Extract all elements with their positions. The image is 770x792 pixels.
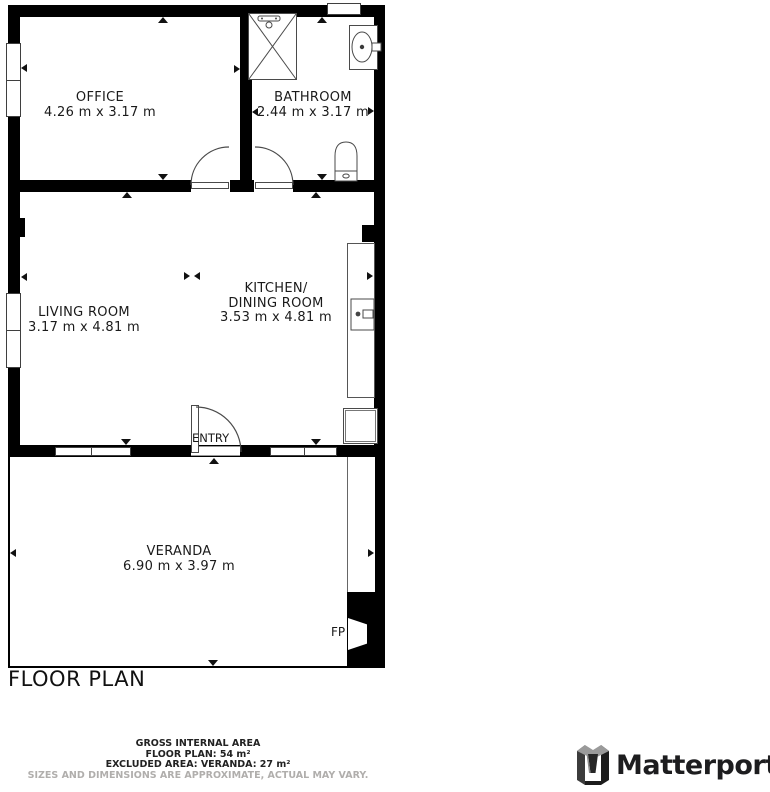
window-bottom-right-b [304,447,337,456]
living-name: LIVING ROOM [28,306,140,321]
room-label-kitchen: KITCHEN/ DINING ROOM 3.53 m x 4.81 m [220,282,332,326]
bathroom-door-leaf [255,182,293,189]
dimension-marker [121,439,131,445]
kitchen-appliance [343,408,378,444]
dimension-marker [21,64,27,72]
matterport-wordmark: Matterport [616,750,770,781]
footer-gross-internal-area: GROSS INTERNAL AREA [28,739,369,750]
wall-pier-right [362,225,385,242]
fireplace-opening [348,618,367,650]
dimension-marker [10,549,16,557]
fireplace [347,592,385,668]
veranda-dims: 6.90 m x 3.97 m [123,560,235,575]
room-label-bathroom: BATHROOM 2.44 m x 3.17 m [257,91,369,120]
dimension-marker [158,174,168,180]
dimension-marker [367,272,373,280]
dimension-marker [234,65,240,73]
window-bottom-left-b [91,447,131,456]
office-name: OFFICE [44,91,156,106]
dimension-marker [122,192,132,198]
bathroom-name: BATHROOM [257,91,369,106]
window-bottom-right-a [270,447,305,456]
dimension-marker [184,272,190,280]
wall-pier-left [8,218,25,237]
dimension-marker [21,273,27,281]
dimension-marker [311,439,321,445]
room-label-office: OFFICE 4.26 m x 3.17 m [44,91,156,120]
kitchen-name-line1: KITCHEN/ [220,282,332,297]
shower-fixture [248,13,297,80]
veranda-wall-left [8,457,10,668]
floor-plan-canvas: OFFICE 4.26 m x 3.17 m BATHROOM 2.44 m x… [0,0,770,792]
veranda-bench [347,457,375,595]
kitchen-dims: 3.53 m x 4.81 m [220,311,332,326]
entry-label: ENTRY [192,431,229,445]
office-door-leaf [191,182,229,189]
room-label-veranda: VERANDA 6.90 m x 3.97 m [123,545,235,574]
window-bottom-left-a [55,447,92,456]
toilet-icon [335,142,357,181]
footer-disclaimer: SIZES AND DIMENSIONS ARE APPROXIMATE, AC… [28,771,369,782]
bathroom-dims: 2.44 m x 3.17 m [257,106,369,121]
fireplace-label: FP [331,625,345,639]
dimension-marker [368,549,374,557]
kitchen-name-line2: DINING ROOM [220,297,332,312]
dimension-marker [194,272,200,280]
room-label-living: LIVING ROOM 3.17 m x 4.81 m [28,306,140,335]
window-office-left-upper [6,43,21,81]
dimension-marker [311,192,321,198]
office-dims: 4.26 m x 3.17 m [44,106,156,121]
dimension-marker [158,17,168,23]
footer-excluded-area: EXCLUDED AREA: VERANDA: 27 m² [28,760,369,771]
window-bathroom-top [327,3,361,15]
entry-door-leaf [191,405,199,453]
matterport-logo-icon [576,744,610,786]
veranda-name: VERANDA [123,545,235,560]
page-title: FLOOR PLAN [8,667,145,691]
dimension-marker [208,660,218,666]
living-dims: 3.17 m x 4.81 m [28,321,140,336]
kitchen-appliance-inner [345,410,376,442]
dimension-marker [209,458,219,464]
window-office-left-lower [6,80,21,117]
window-living-left-upper [6,293,21,331]
window-living-left-lower [6,330,21,368]
dimension-marker [317,174,327,180]
kitchen-counter [347,243,375,398]
dimension-marker [317,17,327,23]
footer-note: GROSS INTERNAL AREA FLOOR PLAN: 54 m² EX… [28,739,369,781]
bathroom-sink-fixture [349,25,378,70]
matterport-branding: Matterport [576,744,770,788]
